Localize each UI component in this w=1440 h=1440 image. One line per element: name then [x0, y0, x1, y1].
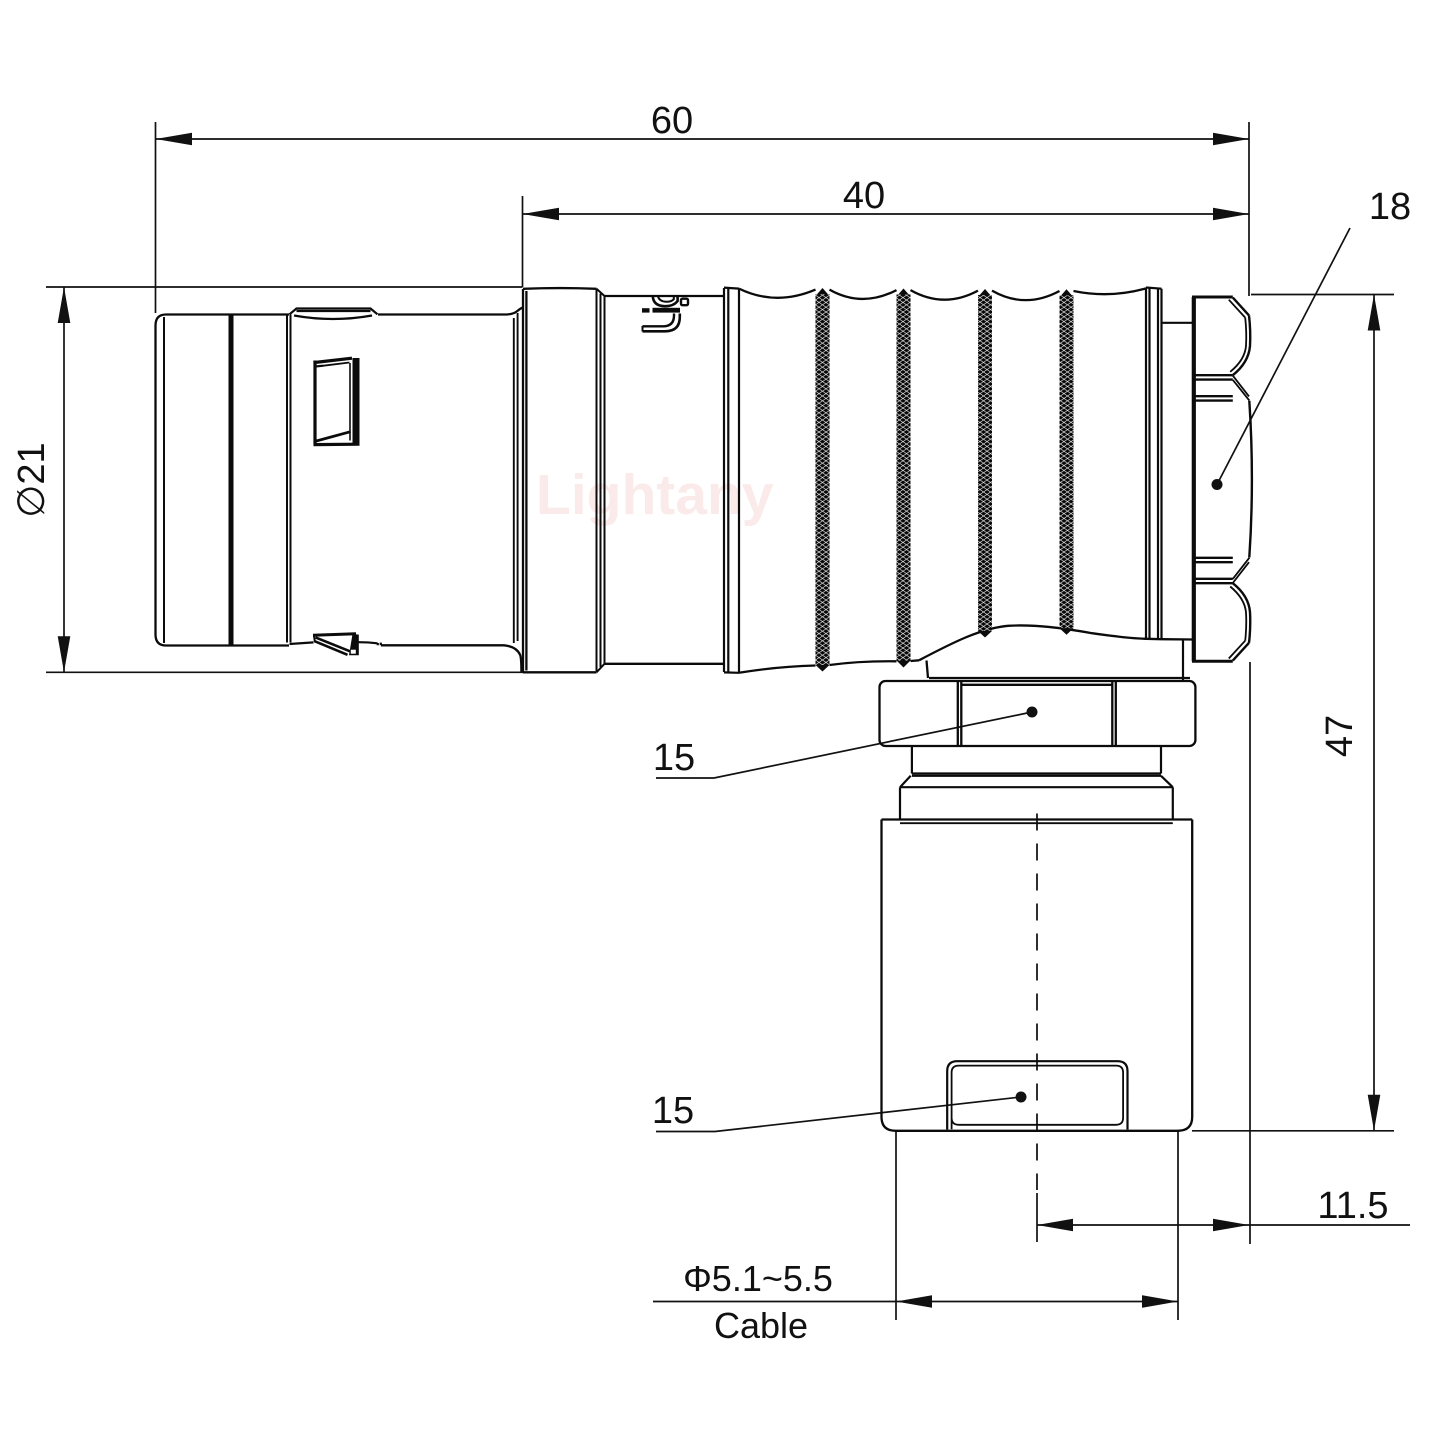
svg-text:Φ5.1~5.5: Φ5.1~5.5	[683, 1258, 833, 1299]
svg-text:60: 60	[651, 100, 693, 142]
svg-text:15: 15	[652, 1090, 694, 1132]
svg-text:18: 18	[1369, 186, 1411, 228]
svg-text:47: 47	[1319, 715, 1361, 757]
svg-text:40: 40	[843, 175, 885, 217]
svg-text:11.5: 11.5	[1317, 1185, 1388, 1227]
svg-text:15: 15	[653, 737, 695, 779]
svg-text:∅21: ∅21	[11, 442, 53, 517]
svg-text:Cable: Cable	[714, 1305, 808, 1346]
